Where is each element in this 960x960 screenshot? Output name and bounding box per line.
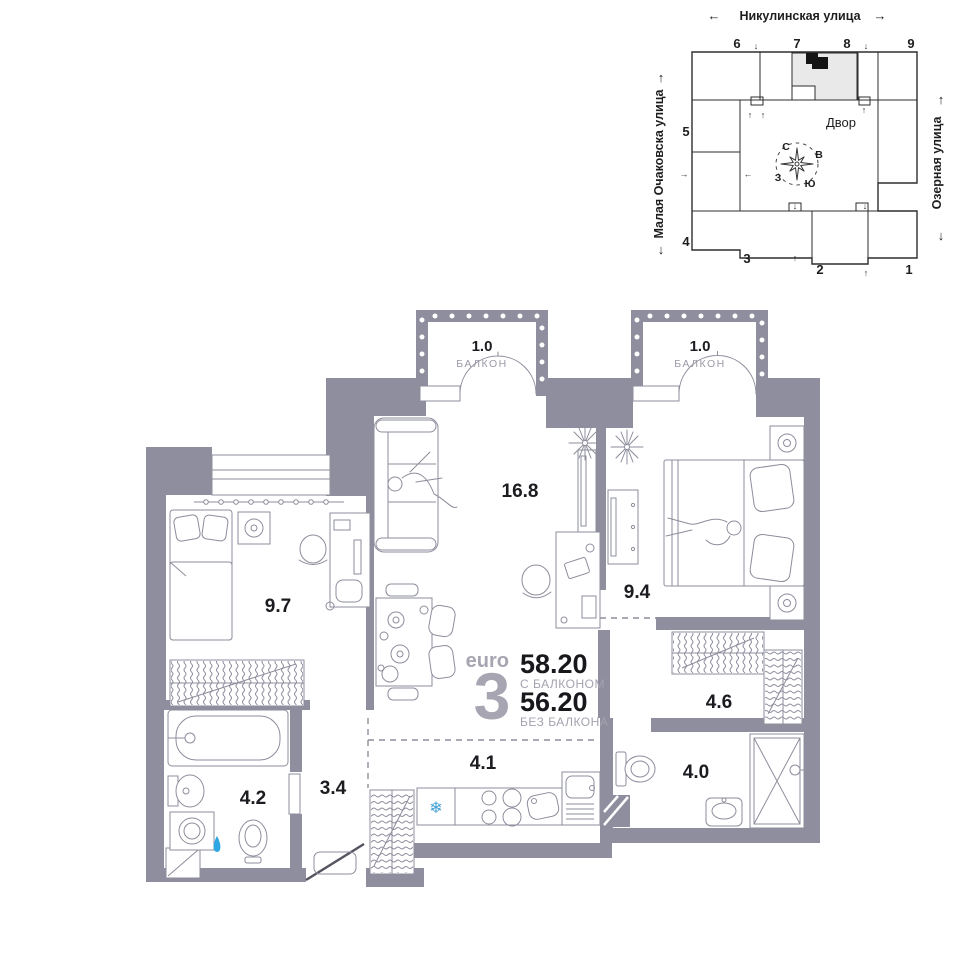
sink — [168, 775, 204, 807]
street-right-arrow-up: ↑ — [938, 92, 945, 107]
water-drop-icon — [214, 836, 221, 852]
entrance-arrow: ↑ — [793, 253, 798, 263]
street-right-label: Озерная улица — [930, 116, 944, 210]
washing-machine — [170, 812, 220, 852]
street-right-arrow-down: ↓ — [938, 228, 945, 243]
entrance-arrow: ↑ — [761, 110, 766, 120]
street-top-arrow-left: ← — [708, 8, 721, 23]
toilet — [239, 820, 267, 863]
chair — [428, 604, 457, 638]
room-area-bedroom-small: 9.7 — [265, 596, 291, 617]
building-number-2: 2 — [816, 262, 823, 277]
wardrobe — [170, 660, 304, 706]
sink — [706, 798, 742, 826]
hall-wardrobe — [370, 790, 414, 874]
site-building-outline — [692, 52, 917, 264]
room-area-kitchen: 4.1 — [470, 753, 497, 774]
courtyard-label: Двор — [826, 115, 856, 130]
toilet — [616, 752, 655, 786]
entrance-arrow: ↑ — [748, 110, 753, 120]
bench — [386, 584, 418, 596]
door-leaf — [289, 774, 300, 814]
compass-icon: С В З Ю — [775, 141, 823, 190]
work-desk — [556, 532, 600, 628]
window-sill — [420, 386, 460, 401]
street-left-label: Малая Очаковска улица — [652, 88, 666, 238]
floorplan-page: Никулинская улица ← → Малая Очаковска ул… — [0, 0, 960, 960]
sofa — [374, 418, 457, 552]
area-without-balcony: 56.20 — [520, 687, 588, 717]
compass-north: С — [782, 141, 790, 153]
nightstand-lamp — [770, 426, 804, 460]
entry-door — [306, 844, 364, 880]
building-number-5: 5 — [682, 124, 689, 139]
room-area-bedroom-master: 9.4 — [624, 582, 651, 603]
unit-rooms-count: 3 — [474, 659, 511, 733]
building-number-4: 4 — [682, 234, 690, 249]
balcony-label: БАЛКОН — [674, 358, 726, 370]
street-top-label: Никулинская улица — [739, 9, 861, 23]
entrance-arrow: ↓ — [793, 201, 798, 211]
street-left-arrow-up: ↑ — [658, 70, 665, 85]
tv-dresser — [608, 490, 638, 564]
balcony-label: БАЛКОН — [456, 358, 508, 370]
office-chair — [522, 565, 551, 598]
entrance-arrow: ← — [744, 169, 753, 179]
building-number-8: 8 — [843, 36, 850, 51]
bathtub — [168, 710, 288, 766]
window-sill — [633, 386, 679, 401]
plant-icon — [611, 430, 643, 464]
bench — [388, 688, 418, 700]
shower — [750, 734, 804, 828]
entrance-arrow: ↓ — [863, 201, 868, 211]
room-area-bathroom-shower: 4.0 — [683, 762, 709, 783]
tv-console — [578, 450, 596, 532]
apartment-info: euro 3 58.20 С БАЛКОНОМ 56.20 БЕЗ БАЛКОН… — [466, 649, 609, 733]
double-bed — [664, 460, 804, 586]
duct-box — [166, 848, 200, 878]
compass-south: Ю — [805, 178, 816, 190]
single-bed — [170, 510, 232, 640]
entrance-arrow: ↑ — [862, 105, 867, 115]
area-without-balcony-label: БЕЗ БАЛКОНА — [520, 715, 608, 729]
desk-chair — [299, 535, 327, 565]
balcony-area: 1.0 — [472, 338, 493, 355]
kitchen-sink — [562, 772, 600, 825]
compass-west: З — [775, 172, 782, 184]
dining-table — [376, 584, 456, 700]
chair — [428, 644, 456, 679]
vent-shaft — [602, 795, 630, 827]
floor-plan: ❄ 1.0 БАЛКОН 1.0 БАЛКОН 9.7 16.8 9.4 4.6 — [146, 310, 820, 887]
entrance-arrow: ↓ — [864, 41, 869, 51]
closet-unit — [672, 632, 764, 674]
closet-unit — [764, 650, 802, 724]
building-number-3: 3 — [743, 251, 750, 266]
snowflake-icon: ❄ — [429, 800, 442, 817]
balcony-area: 1.0 — [690, 338, 711, 355]
building-number-1: 1 — [905, 262, 912, 277]
room-area-wardrobe: 4.6 — [706, 692, 732, 713]
site-plan: Никулинская улица ← → Малая Очаковска ул… — [652, 8, 944, 278]
room-area-bathroom-tub: 4.2 — [240, 788, 266, 809]
nightstand — [238, 512, 270, 544]
curtain-rail — [194, 500, 344, 505]
room-area-living: 16.8 — [502, 481, 539, 502]
building-number-9: 9 — [907, 36, 914, 51]
entrance-arrow: → — [680, 169, 689, 179]
building-number-7: 7 — [793, 36, 800, 51]
street-top-arrow-right: → — [874, 8, 887, 23]
nightstand-lamp — [770, 586, 804, 620]
building-number-6: 6 — [733, 36, 740, 51]
compass-east: В — [815, 149, 823, 161]
entrance-arrow: ↓ — [754, 41, 759, 51]
area-with-balcony: 58.20 — [520, 649, 588, 679]
entrance-arrow: ↑ — [864, 268, 869, 278]
street-left-arrow-down: ↓ — [658, 242, 665, 257]
room-area-hallway: 3.4 — [320, 778, 347, 799]
kitchen-counter: ❄ — [417, 772, 600, 826]
